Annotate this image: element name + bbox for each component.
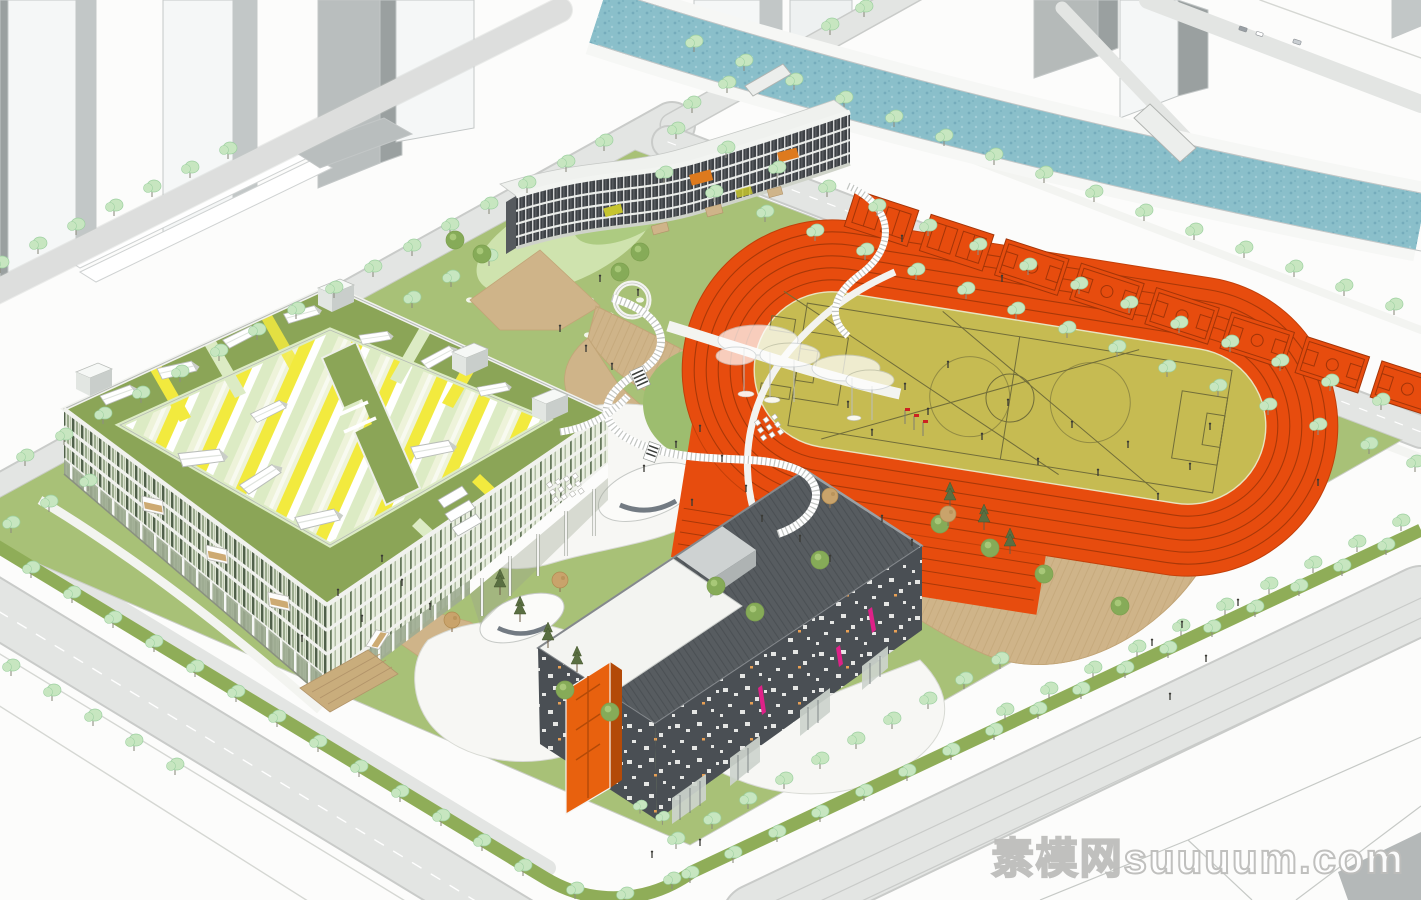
campus-rendering-image: 素模网suuuum.com (0, 0, 1421, 900)
campus-rendering-svg (0, 0, 1421, 900)
watermark: 素模网suuuum.com (992, 825, 1405, 886)
